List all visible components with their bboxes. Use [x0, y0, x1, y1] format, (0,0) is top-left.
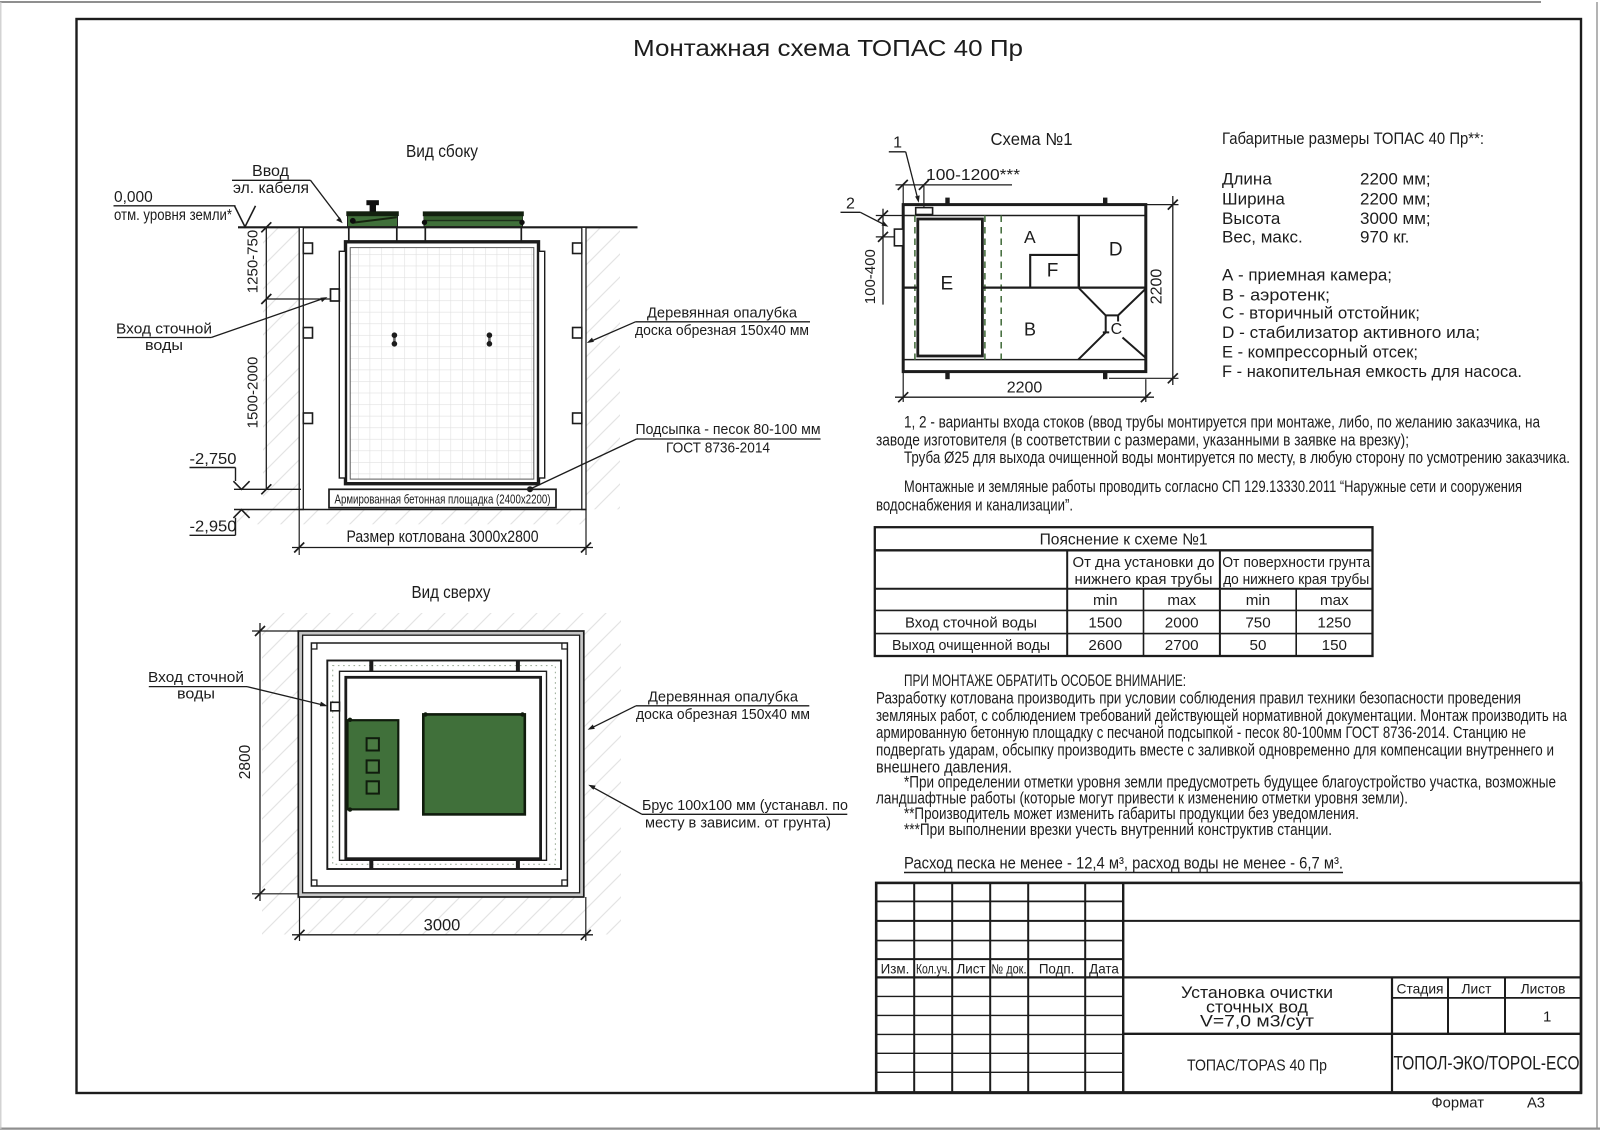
svg-text:Габаритные размеры ТОПАС 40 Пр: Габаритные размеры ТОПАС 40 Пр**:: [1222, 129, 1484, 148]
svg-text:Деревянная опалубка: Деревянная опалубка: [648, 689, 799, 706]
svg-text:эл. кабеля: эл. кабеля: [233, 180, 309, 197]
svg-text:1, 2 - варианты входа стоков: 1, 2 - варианты входа стоков (ввод трубы…: [904, 414, 1540, 432]
svg-text:доска обрезная 150х40 мм: доска обрезная 150х40 мм: [635, 322, 809, 339]
svg-text:-2,750: -2,750: [190, 451, 237, 468]
svg-text:Разработку котлована производи: Разработку котлована производить при усл…: [876, 690, 1521, 708]
svg-text:1250-750: 1250-750: [245, 230, 262, 293]
svg-text:Вес, макс.: Вес, макс.: [1222, 228, 1303, 247]
svg-text:От дна установки до: От дна установки до: [1073, 554, 1215, 571]
svg-text:Ширина: Ширина: [1222, 189, 1285, 208]
svg-text:2: 2: [846, 196, 855, 213]
svg-text:Монтажные и земляные работы пр: Монтажные и земляные работы проводить со…: [904, 478, 1522, 496]
svg-text:1500: 1500: [1088, 615, 1122, 632]
svg-text:1500-2000: 1500-2000: [245, 357, 262, 429]
svg-text:min: min: [1093, 592, 1117, 609]
svg-text:А - приемная камера;: А - приемная камера;: [1222, 266, 1392, 285]
svg-text:Стадия: Стадия: [1396, 981, 1443, 996]
svg-text:2800: 2800: [237, 744, 254, 779]
svg-text:Е - компрессорный отсек;: Е - компрессорный отсек;: [1222, 343, 1418, 362]
svg-text:заводе изготовителя (в соответ: заводе изготовителя (в соответствии с ра…: [876, 432, 1409, 450]
svg-text:Подсыпка - песок 80-100 мм: Подсыпка - песок 80-100 мм: [636, 421, 821, 438]
svg-text:D: D: [1109, 239, 1123, 260]
svg-text:нижнего края трубы: нижнего края трубы: [1075, 571, 1213, 588]
svg-text:до нижнего края трубы: до нижнего края трубы: [1223, 571, 1369, 588]
svg-text:1: 1: [1543, 1009, 1551, 1026]
svg-text:Дата: Дата: [1089, 962, 1119, 977]
svg-text:50: 50: [1250, 637, 1267, 654]
svg-text:3000 мм;: 3000 мм;: [1360, 209, 1431, 228]
svg-text:2700: 2700: [1165, 637, 1199, 654]
svg-text:max: max: [1167, 592, 1196, 609]
svg-text:№ док.: № док.: [992, 962, 1027, 977]
svg-text:Схема №1: Схема №1: [991, 129, 1073, 149]
svg-text:2000: 2000: [1165, 615, 1199, 632]
svg-text:F - накопительная емкость для: F - накопительная емкость для насоса.: [1222, 362, 1522, 381]
svg-text:970 кг.: 970 кг.: [1360, 228, 1409, 247]
svg-text:Пояснение к схеме №1: Пояснение к схеме №1: [1040, 532, 1208, 549]
svg-text:С - вторичный отстойник;: С - вторичный отстойник;: [1222, 304, 1420, 323]
svg-text:2200: 2200: [1149, 269, 1166, 305]
svg-text:V=7,0 м3/сут: V=7,0 м3/сут: [1200, 1013, 1315, 1031]
svg-text:Вход сточной: Вход сточной: [148, 669, 244, 686]
svg-text:земляных работ, с соблюдением: земляных работ, с соблюдением требований…: [876, 707, 1567, 725]
svg-text:2200 мм;: 2200 мм;: [1360, 170, 1431, 189]
svg-text:воды: воды: [145, 337, 183, 354]
svg-text:Вход сточной воды: Вход сточной воды: [905, 615, 1037, 632]
svg-text:Вид сверху: Вид сверху: [412, 582, 491, 602]
svg-text:Кол.уч.: Кол.уч.: [916, 962, 950, 977]
svg-text:Ввод: Ввод: [252, 163, 289, 180]
svg-text:Вид сбоку: Вид сбоку: [406, 141, 478, 161]
svg-text:месту в зависим. от грунта): месту в зависим. от грунта): [645, 815, 831, 832]
svg-text:1: 1: [893, 135, 902, 152]
svg-text:Листов: Листов: [1521, 981, 1566, 996]
svg-text:ТОПОЛ-ЭКО/TOPOL-ECO: ТОПОЛ-ЭКО/TOPOL-ECO: [1394, 1053, 1580, 1075]
svg-text:2200: 2200: [1007, 380, 1043, 397]
svg-text:min: min: [1246, 592, 1270, 609]
svg-text:Выход очищенной воды: Выход очищенной воды: [892, 637, 1050, 654]
svg-text:max: max: [1320, 592, 1349, 609]
svg-text:Расход песка не менее - 12,4 м: Расход песка не менее - 12,4 м³, расход …: [904, 855, 1343, 873]
svg-text:-2,950: -2,950: [190, 519, 237, 536]
svg-text:Размер котлована 3000х2800: Размер котлована 3000х2800: [347, 528, 539, 546]
svg-text:D - стабилизатор активного ила: D - стабилизатор активного ила;: [1222, 323, 1480, 342]
svg-text:2600: 2600: [1088, 637, 1122, 654]
svg-text:B: B: [1024, 320, 1036, 340]
svg-text:3000: 3000: [424, 917, 461, 935]
svg-text:ПРИ МОНТАЖЕ ОБРАТИТЬ ОСОБОЕ ВН: ПРИ МОНТАЖЕ ОБРАТИТЬ ОСОБОЕ ВНИМАНИЕ:: [904, 672, 1186, 690]
svg-text:C: C: [1111, 321, 1123, 338]
svg-text:0,000: 0,000: [114, 189, 153, 206]
svg-text:Длина: Длина: [1222, 170, 1272, 189]
svg-text:Армированная бетонная площадка: Армированная бетонная площадка (2400х220…: [335, 492, 551, 507]
svg-text:750: 750: [1245, 615, 1270, 632]
svg-text:Труба Ø25 для выхода очищенной: Труба Ø25 для выхода очищенной воды монт…: [904, 449, 1570, 467]
svg-text:Деревянная опалубка: Деревянная опалубка: [647, 305, 798, 322]
svg-text:2200 мм;: 2200 мм;: [1360, 189, 1431, 208]
svg-text:E: E: [940, 274, 953, 295]
svg-text:Изм.: Изм.: [881, 962, 910, 977]
svg-text:Высота: Высота: [1222, 209, 1281, 228]
svg-text:Лист: Лист: [1462, 981, 1493, 996]
svg-text:Формат: Формат: [1431, 1096, 1484, 1112]
svg-text:***При выполнении врезки учест: ***При выполнении врезки учесть внутренн…: [904, 821, 1332, 839]
svg-text:Подп.: Подп.: [1039, 962, 1075, 977]
svg-text:ГОСТ 8736-2014: ГОСТ 8736-2014: [666, 440, 770, 457]
svg-text:А3: А3: [1527, 1096, 1545, 1112]
svg-text:Брус 100х100 мм (устанавл. по: Брус 100х100 мм (устанавл. по: [642, 797, 848, 814]
svg-text:Вход сточной: Вход сточной: [116, 321, 212, 338]
svg-text:ТОПАС/TOPAS 40 Пр: ТОПАС/TOPAS 40 Пр: [1187, 1058, 1327, 1075]
svg-text:F: F: [1047, 260, 1059, 281]
svg-text:150: 150: [1322, 637, 1347, 654]
svg-text:Монтажная схема ТОПАС 40 Пр: Монтажная схема ТОПАС 40 Пр: [633, 35, 1023, 61]
svg-text:воды: воды: [177, 686, 215, 703]
svg-text:доска обрезная 150х40 мм: доска обрезная 150х40 мм: [636, 706, 810, 723]
svg-text:100-1200***: 100-1200***: [926, 167, 1020, 184]
svg-text:водоснабжения и канализации”.: водоснабжения и канализации”.: [876, 497, 1073, 515]
svg-text:A: A: [1024, 227, 1036, 247]
svg-text:100-400: 100-400: [862, 249, 879, 304]
svg-text:армированную бетонную площадку: армированную бетонную площадку с песчано…: [876, 724, 1526, 742]
svg-text:отм. уровня земли*: отм. уровня земли*: [114, 207, 232, 224]
svg-text:подвергать ударам, обсыпку про: подвергать ударам, обсыпку производить в…: [876, 742, 1554, 760]
svg-text:1250: 1250: [1317, 615, 1351, 632]
svg-text:В - аэротенк;: В - аэротенк;: [1222, 285, 1330, 304]
svg-text:От поверхности грунта: От поверхности грунта: [1222, 554, 1370, 571]
svg-text:Лист: Лист: [956, 962, 985, 977]
